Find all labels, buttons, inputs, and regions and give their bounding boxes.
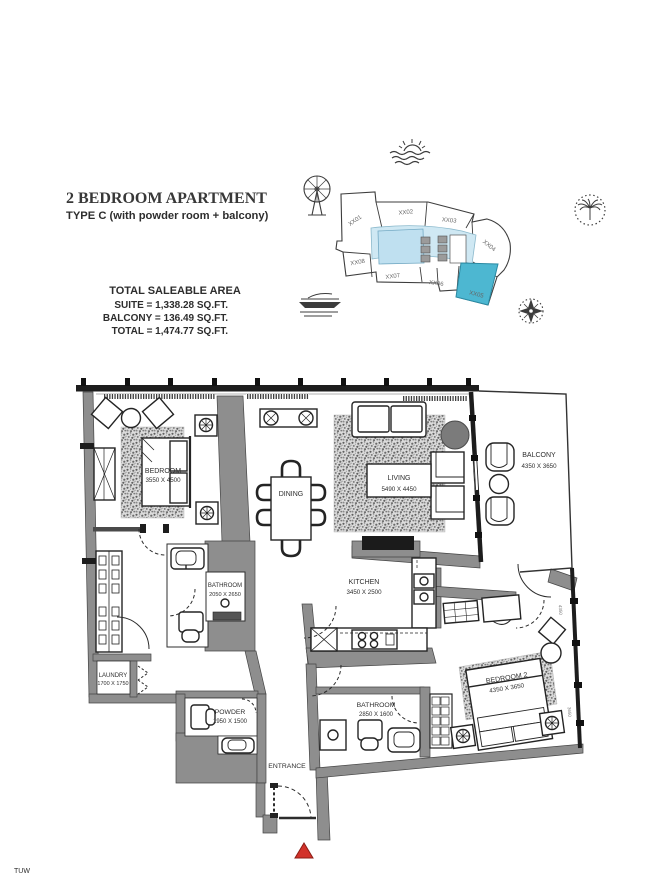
svg-text:TOTAL SALEABLE AREA: TOTAL SALEABLE AREA (109, 285, 241, 297)
svg-text:TYPE C (with powder room + bal: TYPE C (with powder room + balcony) (66, 210, 269, 222)
svg-text:4350: 4350 (558, 605, 564, 616)
svg-text:2850 X 1600: 2850 X 1600 (359, 712, 394, 718)
svg-text:BATHROOM: BATHROOM (208, 583, 242, 589)
svg-text:BATHROOM: BATHROOM (357, 702, 396, 709)
svg-text:LAUNDRY: LAUNDRY (99, 673, 128, 679)
svg-text:3550 X 4500: 3550 X 4500 (145, 477, 181, 484)
svg-text:1700 X 1750: 1700 X 1750 (97, 681, 128, 687)
svg-text:3450 X 2500: 3450 X 2500 (346, 589, 382, 596)
svg-text:POWDER: POWDER (215, 709, 246, 716)
svg-text:KITCHEN: KITCHEN (349, 579, 380, 586)
svg-text:SUITE = 1,338.28 SQ.FT.: SUITE = 1,338.28 SQ.FT. (114, 300, 228, 311)
svg-text:BALCONY: BALCONY (522, 452, 556, 459)
svg-text:2050 X 2650: 2050 X 2650 (209, 592, 241, 598)
svg-text:4350 X 3650: 4350 X 3650 (521, 463, 557, 470)
svg-text:3650: 3650 (567, 707, 573, 718)
svg-text:TUW: TUW (14, 868, 30, 873)
svg-text:1950 X 1500: 1950 X 1500 (213, 719, 248, 725)
svg-text:2 BEDROOM APARTMENT: 2 BEDROOM APARTMENT (66, 190, 267, 207)
svg-text:BALCONY = 136.49 SQ.FT.: BALCONY = 136.49 SQ.FT. (103, 313, 228, 324)
svg-text:BEDROOM: BEDROOM (145, 468, 181, 475)
svg-text:DINING: DINING (279, 491, 304, 498)
svg-text:XX06: XX06 (428, 280, 444, 288)
svg-text:ENTRANCE: ENTRANCE (268, 763, 306, 770)
svg-text:LIVING: LIVING (388, 475, 411, 482)
svg-text:5490 X 4450: 5490 X 4450 (381, 486, 417, 493)
svg-text:TOTAL = 1,474.77 SQ.FT.: TOTAL = 1,474.77 SQ.FT. (112, 326, 229, 337)
